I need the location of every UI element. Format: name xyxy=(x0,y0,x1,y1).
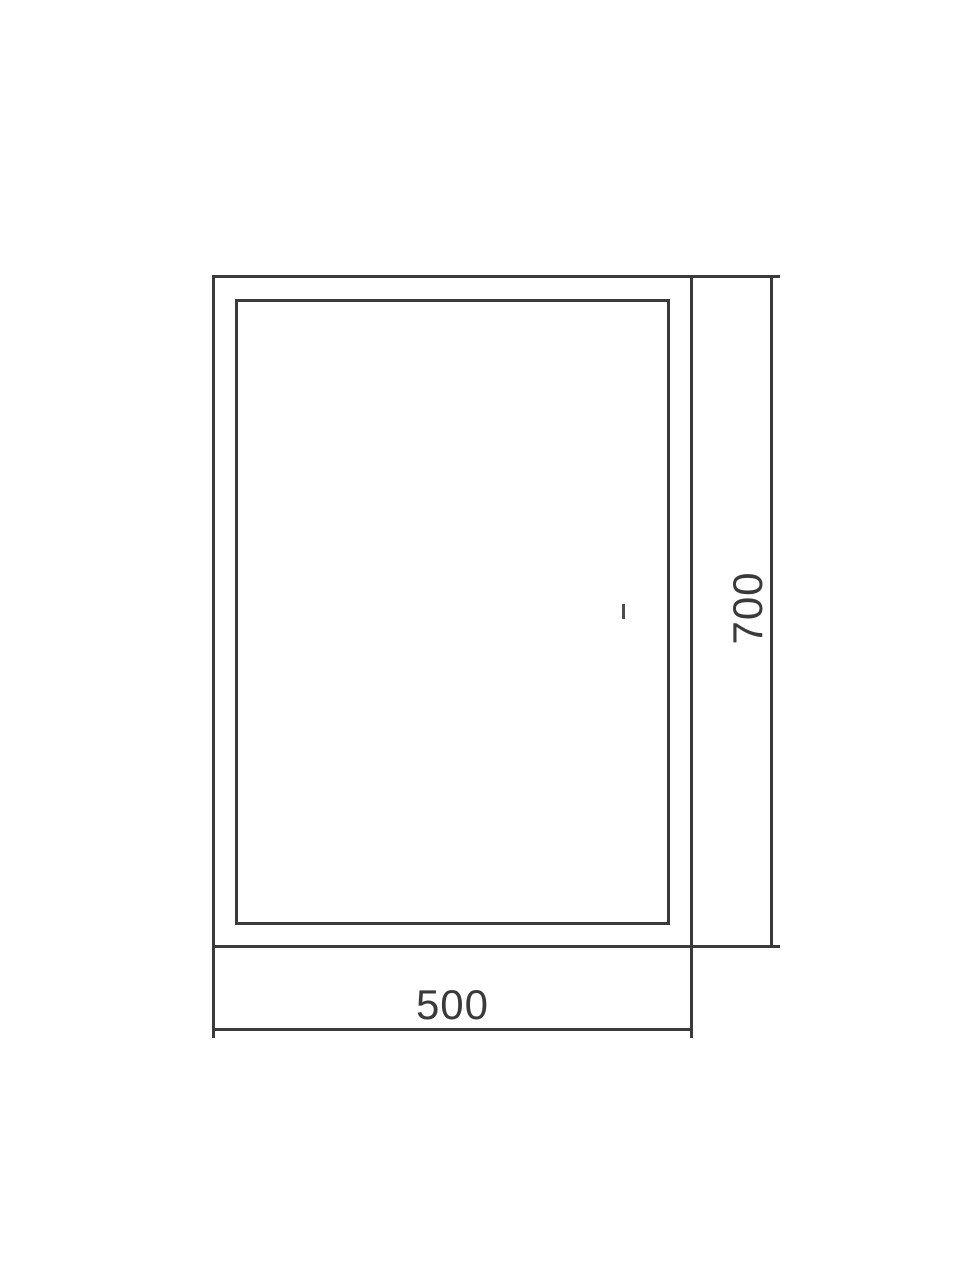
height-dim-extension-line-top xyxy=(693,275,780,278)
height-dim-extension-line-bottom xyxy=(693,945,780,948)
width-dimension-label: 500 xyxy=(212,984,693,1026)
sensor-tick-icon xyxy=(622,604,625,619)
technical-drawing-canvas: 700 500 xyxy=(0,0,960,1280)
panel-inner-outline xyxy=(235,299,670,925)
height-dimension-label: 700 xyxy=(727,571,769,644)
width-dimension-line xyxy=(212,1028,693,1031)
